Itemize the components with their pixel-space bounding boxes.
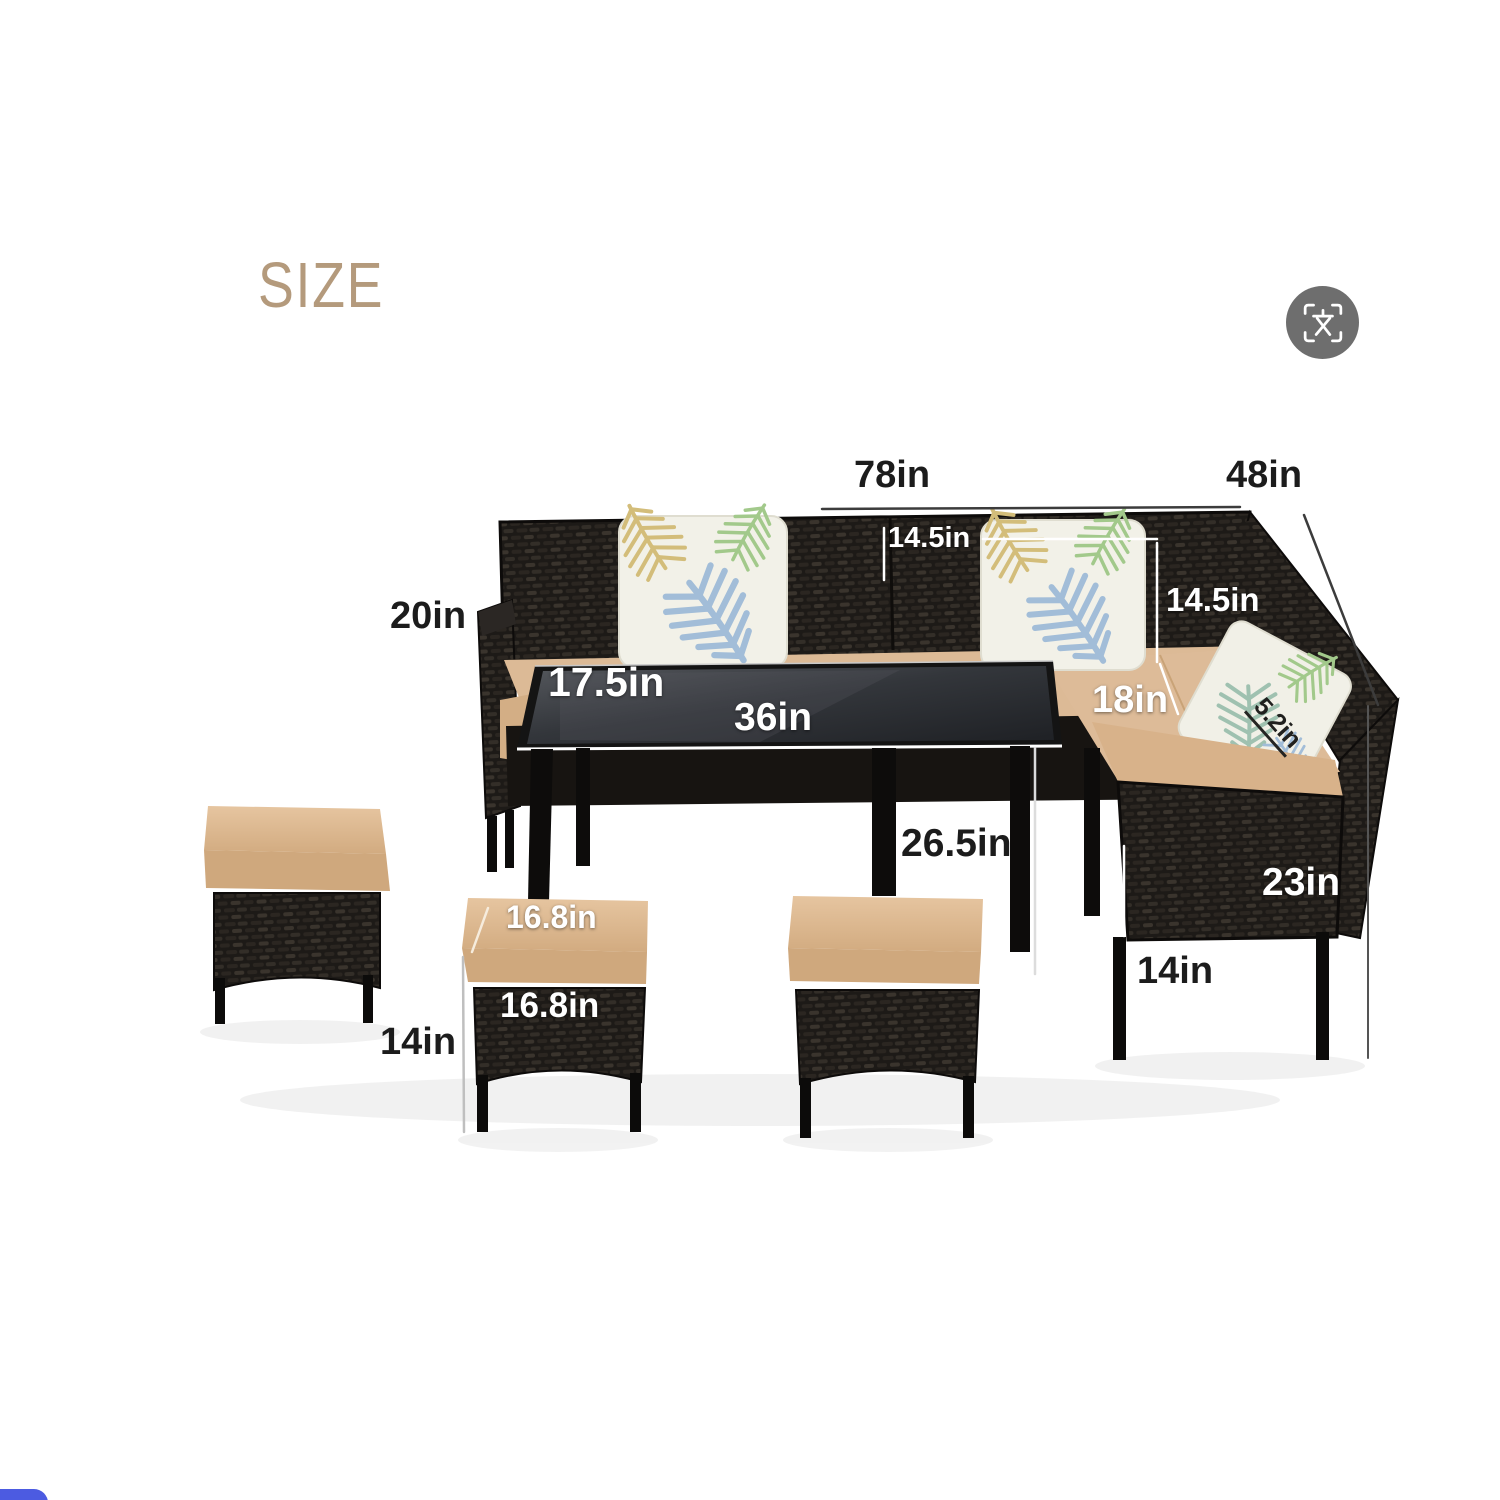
dim-chair-back-height: 23in xyxy=(1262,863,1340,902)
dim-ottoman-top-width: 16.8in xyxy=(506,901,597,933)
dim-seat-depth: 18in xyxy=(1092,681,1168,719)
dim-sofa-total-width: 78in xyxy=(854,456,930,494)
dim-ottoman-leg-height: 14in xyxy=(380,1023,456,1061)
pillow-left xyxy=(604,491,787,683)
floor-shadows xyxy=(200,1020,1365,1152)
floating-button-corner[interactable] xyxy=(0,1489,48,1500)
dim-table-height: 26.5in xyxy=(901,824,1012,863)
dim-back-cushion-width: 14.5in xyxy=(888,524,970,553)
pillow-middle xyxy=(967,495,1147,682)
dim-table-depth: 17.5in xyxy=(548,662,664,703)
dim-sofa-total-depth: 48in xyxy=(1226,456,1302,494)
dim-back-cushion-height: 14.5in xyxy=(1166,583,1260,616)
dim-table-length: 36in xyxy=(734,698,812,737)
size-diagram-page: SIZE xyxy=(0,0,1500,1500)
furniture-illustration xyxy=(0,0,1500,1500)
ottoman-left xyxy=(204,806,390,1024)
dim-arm-height: 20in xyxy=(390,597,466,635)
dim-chair-leg-height: 14in xyxy=(1137,952,1213,990)
dim-ottoman-front-width: 16.8in xyxy=(500,988,599,1023)
